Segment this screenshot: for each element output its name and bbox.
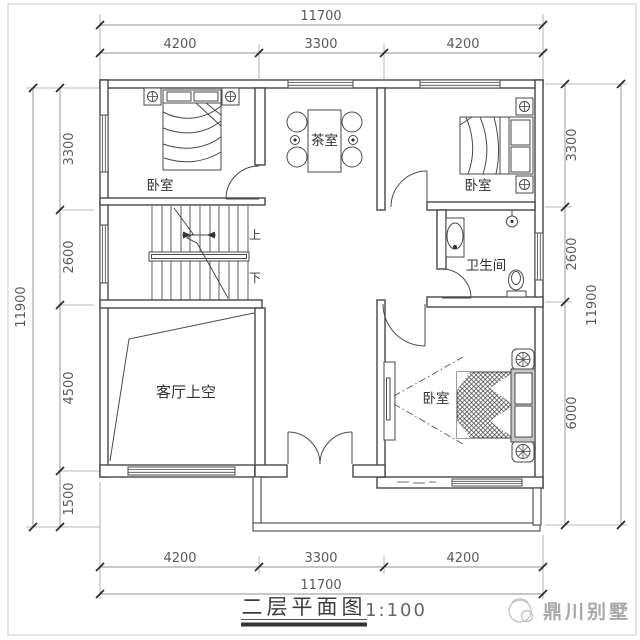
label-living-void: 客厅上空	[156, 383, 216, 401]
dim-right-total: 11900	[585, 284, 600, 325]
window-bottom-living	[128, 467, 235, 475]
title-block: 二层平面图 1:100 鼎川别墅	[241, 595, 631, 627]
dim-left-seg-4: 1500	[62, 482, 77, 515]
door-bedroom-bottom-right	[383, 304, 425, 346]
dim-bottom-seg-2: 3300	[304, 551, 337, 566]
nightstand	[222, 88, 239, 105]
dim-top-total: 11700	[300, 9, 341, 24]
dim-left-seg-3: 4500	[62, 371, 77, 404]
dim-top-seg-3: 4200	[446, 37, 479, 52]
chair	[342, 112, 362, 132]
room-tea: 茶室	[287, 110, 362, 172]
dim-left-total: 11900	[14, 286, 29, 327]
window-left-upper	[100, 115, 108, 172]
label-bedroom-top-right: 卧室	[465, 177, 492, 194]
room-living-void: 客厅上空	[110, 313, 254, 461]
dim-bottom-seg-1: 4200	[163, 551, 196, 566]
tea-cup	[291, 136, 300, 145]
shower-head	[507, 210, 518, 227]
door-bedroom-top-left	[226, 166, 259, 199]
window-top-bedroom	[420, 80, 500, 88]
chair	[342, 147, 362, 167]
label-tea-room: 茶室	[311, 132, 338, 149]
chair	[287, 147, 307, 167]
drawing-title: 二层平面图	[242, 595, 367, 619]
nightstand	[512, 441, 534, 462]
dim-bottom-seg-3: 4200	[446, 551, 479, 566]
dim-right-seg-3: 6000	[565, 396, 580, 429]
bed	[460, 117, 533, 174]
window-right-bathroom	[535, 233, 543, 280]
label-stairs-down: 下	[249, 271, 261, 285]
double-door-balcony	[288, 432, 352, 464]
watermark-logo-icon	[509, 599, 533, 622]
floor-plan-drawing: 11700 4200 3300 4200 4200 3300 4200 1170…	[0, 0, 640, 640]
bed	[163, 90, 221, 170]
room-bedroom-top-right: 卧室	[460, 98, 533, 194]
stairs-handrail	[149, 252, 249, 261]
bed	[457, 369, 535, 442]
tea-cup	[349, 136, 358, 145]
door-bedroom-top-right	[391, 171, 427, 207]
dimension-bottom: 4200 3300 4200 11700	[96, 482, 547, 599]
floor-plan-canvas: 11700 4200 3300 4200 4200 3300 4200 1170…	[0, 0, 640, 640]
label-stairs-up: 上	[249, 228, 261, 242]
dim-right-seg-2: 2600	[565, 237, 580, 270]
window-left-lower	[100, 225, 108, 283]
dimension-left: 11900 3300 2600 4500 1500	[14, 84, 100, 531]
nightstand	[144, 88, 161, 105]
dim-bottom-total: 11700	[300, 578, 341, 593]
room-bedroom-bottom-right: 卧室	[384, 349, 535, 462]
dim-right-seg-1: 3300	[565, 128, 580, 161]
nightstand	[516, 176, 533, 193]
label-bathroom: 卫生间	[466, 258, 507, 274]
nightstand	[516, 98, 533, 115]
label-bedroom-bottom-right: 卧室	[423, 390, 450, 407]
dimension-top: 11700 4200 3300 4200	[96, 9, 547, 80]
dim-left-seg-1: 3300	[62, 132, 77, 165]
room-bathroom: 卫生间	[446, 210, 526, 297]
window-top-tea	[288, 80, 353, 88]
label-bedroom-top-left: 卧室	[147, 177, 174, 194]
watermark-brand: 鼎川别墅	[543, 601, 631, 623]
dim-top-seg-1: 4200	[163, 37, 196, 52]
dim-top-seg-2: 3300	[304, 37, 337, 52]
toilet	[507, 270, 526, 297]
nightstand	[512, 349, 534, 370]
stairs: 上 下	[149, 206, 261, 300]
chair	[287, 112, 307, 132]
window-bottom-bedroom	[452, 479, 522, 486]
dimension-right: 3300 2600 6000 11900	[545, 80, 627, 529]
drawing-scale: 1:100	[365, 600, 427, 621]
title-underline-thick	[241, 623, 367, 627]
room-bedroom-top-left: 卧室	[144, 88, 239, 194]
dim-left-seg-2: 2600	[62, 240, 77, 273]
sink	[446, 218, 464, 257]
